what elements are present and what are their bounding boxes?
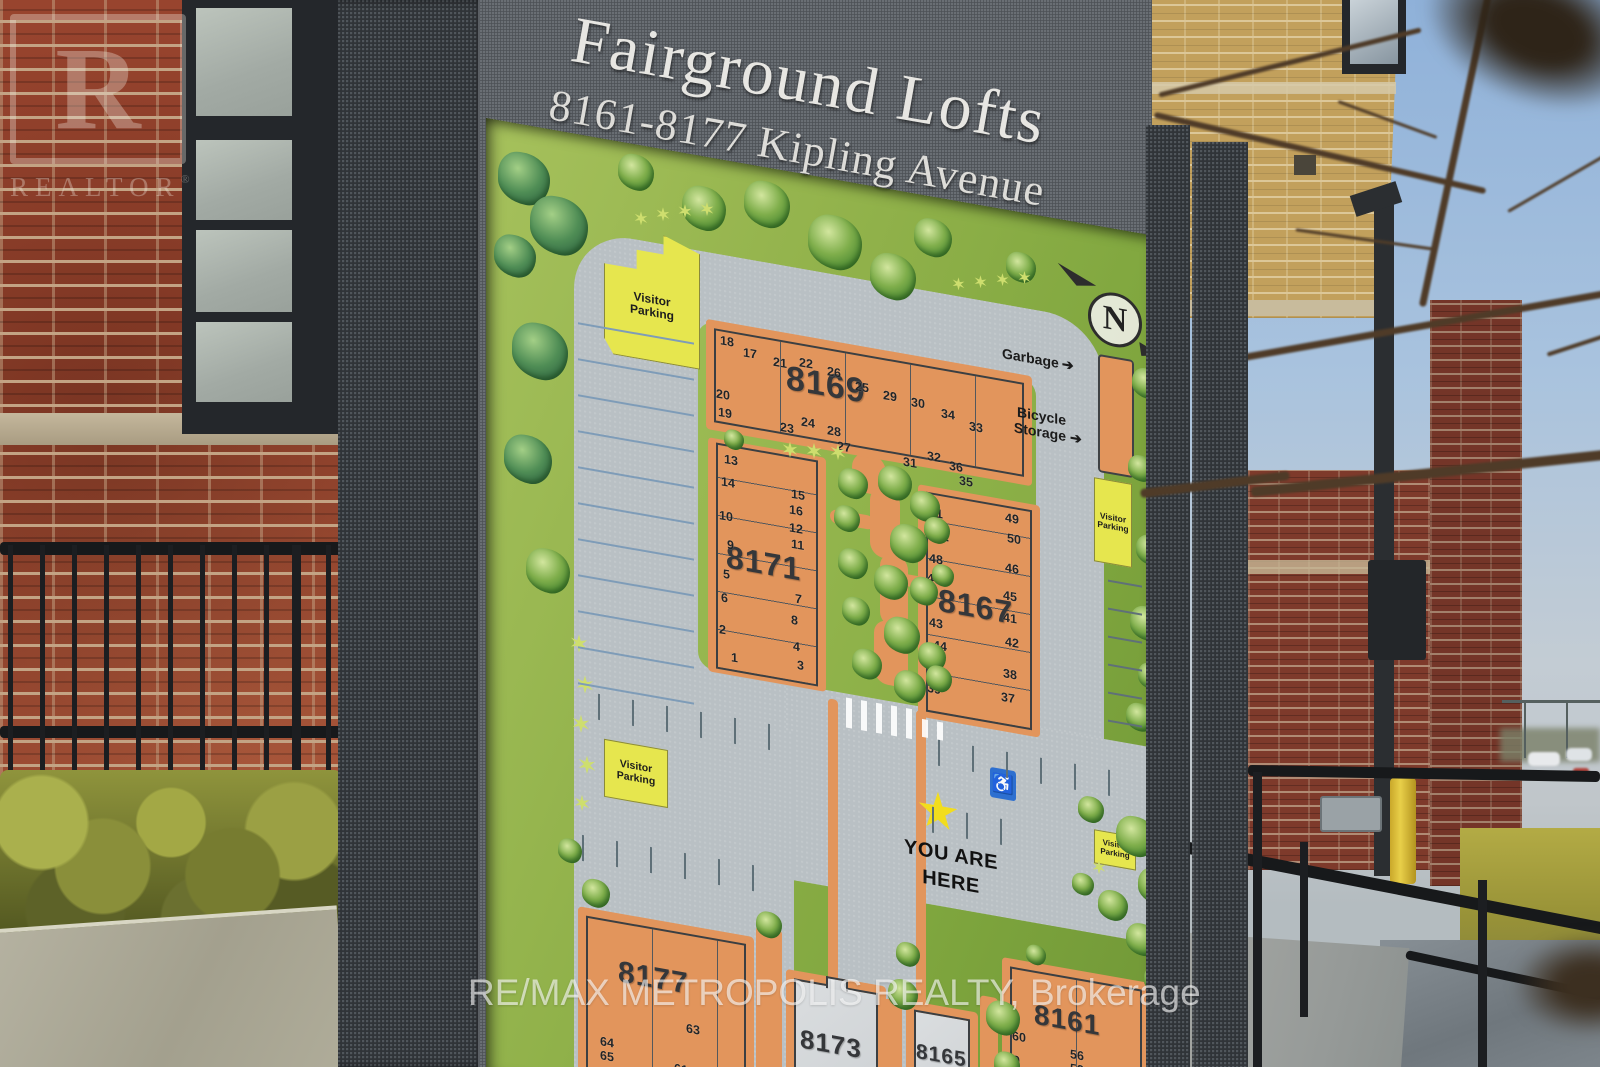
- parking-stall-line: [700, 712, 702, 738]
- compass-n-label: N: [1103, 299, 1128, 341]
- photo-of-site-map-sign: Fairground Lofts 8161-8177 Kipling Avenu…: [0, 0, 1600, 1067]
- parking-stall-line: [972, 746, 974, 772]
- fence-post: [1524, 700, 1526, 758]
- parking-stall-line: [1108, 664, 1142, 672]
- brick-vent: [1294, 155, 1316, 175]
- visitor-parking-label: Visitor Parking: [614, 758, 658, 789]
- unit-number: 28: [827, 423, 841, 439]
- electrical-box: [1368, 560, 1426, 660]
- railing-corner-post: [292, 545, 301, 785]
- unit-number: 5: [723, 567, 730, 582]
- parking-stall-line: [684, 853, 686, 879]
- shrub-symbol: [634, 210, 648, 226]
- railing-bar: [168, 545, 173, 785]
- unit-number: 38: [1003, 666, 1017, 682]
- railing-bar: [200, 545, 205, 785]
- unit-number: 13: [724, 452, 738, 468]
- unit-number: 46: [1005, 561, 1019, 577]
- parking-stall-line: [1006, 752, 1008, 778]
- visitor-parking-label: Visitor Parking: [1097, 510, 1129, 534]
- unit-number: 50: [1007, 531, 1021, 547]
- parking-stall-line: [1000, 819, 1002, 845]
- parking-stall-line: [938, 740, 940, 766]
- unit-number: 37: [1001, 690, 1015, 706]
- north-compass: N: [1082, 285, 1146, 360]
- unit-number: 25: [855, 379, 869, 395]
- shrub-symbol: [996, 272, 1009, 287]
- tree-symbol: [494, 231, 536, 280]
- unit-number: 8: [791, 613, 798, 628]
- unit-number: 17: [743, 345, 757, 361]
- unit-number: 32: [927, 449, 941, 465]
- unit-number: 19: [718, 405, 732, 421]
- wheelchair-icon: ♿: [992, 772, 1014, 796]
- tree-symbol: [530, 192, 588, 260]
- parking-stall-line: [1108, 636, 1142, 644]
- unit-number: 18: [720, 333, 734, 349]
- unit-number: 63: [686, 1021, 700, 1037]
- parking-stall-line: [752, 865, 754, 891]
- drive-orange-strip: [756, 926, 782, 1067]
- window-mullion: [190, 116, 302, 140]
- shrub-symbol: [952, 276, 965, 291]
- arrow-right-icon: ➔: [1062, 356, 1074, 374]
- parking-stall-line: [768, 724, 770, 750]
- distant-car: [1566, 748, 1592, 761]
- sign-left-post: [338, 0, 486, 1067]
- unit-number: 23: [780, 420, 794, 436]
- unit-number: 45: [1003, 588, 1017, 604]
- unit-number: 34: [941, 406, 955, 422]
- parking-stall-line: [1108, 770, 1110, 796]
- railing-bar: [40, 545, 45, 785]
- unit-number: 43: [929, 615, 943, 631]
- unit-number: 12: [789, 520, 803, 536]
- foreground-branch-blur: [1515, 935, 1600, 1035]
- unit-number: 31: [903, 455, 917, 471]
- window-mullion: [190, 220, 302, 230]
- unit-number: 24: [801, 415, 815, 431]
- distant-car: [1528, 752, 1560, 766]
- window-side-frame: [292, 0, 338, 434]
- parking-stall-line: [1108, 580, 1142, 588]
- unit-number: 41: [1003, 610, 1017, 626]
- unit-number: 21: [773, 355, 787, 371]
- unit-number: 33: [969, 419, 983, 435]
- arrow-right-icon: ➔: [1070, 429, 1082, 447]
- parking-stall-line: [582, 835, 584, 861]
- handrail-post: [1253, 772, 1262, 1067]
- unit-number: 2: [719, 622, 726, 637]
- accessible-parking-sign: ♿: [990, 767, 1016, 802]
- upper-window-glass: [1350, 0, 1398, 64]
- window-transom: [196, 8, 292, 116]
- planter-wall: [0, 905, 349, 1067]
- window-mullion: [190, 312, 302, 322]
- parking-stall-line: [1074, 764, 1076, 790]
- unit-number: 35: [959, 473, 973, 489]
- unit-number: 1: [731, 650, 738, 665]
- unit-number: 36: [949, 459, 963, 475]
- tree-symbol: [1128, 453, 1148, 484]
- railing-bar: [8, 545, 13, 785]
- parking-stall-line: [632, 700, 634, 726]
- parking-stall-line: [966, 813, 968, 839]
- unit-number: 22: [799, 355, 813, 371]
- utility-meters: [1320, 796, 1382, 832]
- tree-symbol: [512, 319, 568, 385]
- railing-bar: [326, 545, 331, 785]
- chain-link-fence-rail: [1502, 700, 1600, 703]
- window-pane: [196, 230, 292, 312]
- window-pane: [196, 140, 292, 220]
- unit-number: 14: [721, 474, 735, 490]
- unit-number: 6: [721, 590, 728, 605]
- sign-right-frame-inner: [1146, 125, 1190, 1067]
- parking-stall-line: [1108, 692, 1142, 700]
- unit-number: 3: [797, 658, 804, 673]
- tree-symbol: [808, 211, 862, 275]
- tree-symbol: [618, 151, 654, 193]
- tree-symbol: [1006, 250, 1036, 285]
- unit-number: 7: [795, 591, 802, 606]
- railing-bar: [264, 545, 269, 785]
- tree-symbol: [504, 431, 552, 487]
- window-pane: [196, 322, 292, 402]
- unit-number: 29: [883, 388, 897, 404]
- unit-number: 64 65: [600, 1034, 614, 1064]
- unit-number: 30: [911, 395, 925, 411]
- visitor-parking-bottom-left: Visitor Parking: [604, 739, 668, 808]
- parking-stall-line: [734, 718, 736, 744]
- unit-number: 42: [1005, 635, 1019, 651]
- tree-symbol: [682, 183, 726, 235]
- unit-number: 49: [1005, 511, 1019, 527]
- tree-symbol: [744, 177, 790, 231]
- sign-right-frame-outer: [1192, 142, 1248, 1067]
- tree-symbol: [914, 215, 952, 260]
- unit-number: 20: [716, 387, 730, 403]
- parking-stall-line: [598, 694, 600, 720]
- unit-number: 16: [789, 502, 803, 518]
- railing-bar: [72, 545, 77, 785]
- unit-number: 11: [791, 537, 804, 553]
- visitor-parking-right: Visitor Parking: [1094, 477, 1132, 568]
- unit-number: 4: [793, 639, 800, 654]
- tree-symbol: [526, 545, 570, 597]
- compass-circle: N: [1088, 288, 1142, 352]
- site-map: 8169 8171 8167 8177 8173 8165 8161 18172…: [486, 118, 1148, 1067]
- unit-number: 9: [727, 537, 734, 552]
- parking-stall-line: [666, 706, 668, 732]
- handrail-post: [1300, 842, 1308, 1017]
- railing-bar: [104, 545, 109, 785]
- unit-number: 26: [827, 364, 841, 380]
- railing-bar: [136, 545, 141, 785]
- yellow-bollard: [1390, 778, 1416, 884]
- shrub-symbol: [656, 206, 670, 222]
- parking-stall-line: [932, 807, 934, 833]
- handrail-post: [1478, 880, 1487, 1067]
- railing-bar: [232, 545, 237, 785]
- north-arrow-icon: [1055, 263, 1098, 303]
- tree-symbol: [1126, 701, 1148, 734]
- unit-number: 56 53: [1070, 1047, 1084, 1067]
- parking-stall-line: [718, 859, 720, 885]
- unit-number: 10: [719, 508, 733, 524]
- visitor-parking-label: Visitor Parking: [620, 287, 684, 325]
- unit-number: 15: [791, 487, 805, 503]
- parking-stall-line: [616, 841, 618, 867]
- tree-symbol: [1126, 921, 1148, 959]
- parking-stall-line: [650, 847, 652, 873]
- red-brick-pillar: [1430, 300, 1522, 886]
- parking-stall-line: [1040, 758, 1042, 784]
- shrub-symbol: [974, 274, 987, 289]
